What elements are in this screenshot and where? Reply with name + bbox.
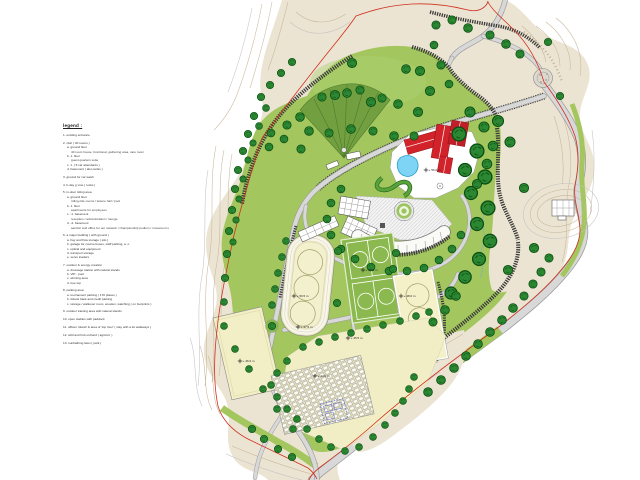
tree-icon [435, 256, 443, 264]
tree-icon [452, 292, 461, 301]
tree-icon [488, 141, 498, 151]
tree-icon [245, 157, 251, 163]
tree-icon [260, 435, 267, 442]
tree-icon [473, 253, 486, 266]
tree-icon [481, 201, 495, 215]
tree-icon [509, 304, 518, 313]
legend-title: legend : [63, 123, 183, 128]
tree-icon [544, 38, 551, 45]
tree-icon [327, 231, 335, 239]
legend-item: 9. outdoor training area with natural st… [63, 309, 183, 313]
svg-text:+ 44.0 m: + 44.0 m [318, 374, 330, 378]
tree-icon [318, 93, 326, 101]
legend-item: aerobic and office for our network / cha… [63, 226, 183, 230]
tree-icon [288, 58, 295, 65]
legend-item: c. storage / walkover room, wooden, watc… [63, 302, 183, 306]
tree-icon [378, 94, 386, 102]
tree-icon [268, 322, 275, 329]
tree-icon [284, 406, 291, 413]
tree-icon [483, 234, 496, 247]
tree-icon [275, 270, 282, 277]
tree-icon [424, 388, 433, 397]
tree-icon [413, 313, 420, 320]
tree-icon [415, 66, 424, 75]
tree-icon [430, 41, 438, 49]
tree-icon [267, 129, 275, 137]
tree-icon [328, 444, 335, 451]
tree-icon [472, 179, 481, 188]
svg-text:+ 46.0 m: + 46.0 m [243, 359, 255, 363]
tree-icon [221, 299, 228, 306]
site-plan-sheet: + 56.0 m+ 52.5 m+ 50.5 m+ 48.0 m+ 47.5 m… [0, 0, 640, 480]
tree-icon [274, 370, 281, 377]
tree-icon [448, 245, 456, 253]
tree-icon [364, 326, 371, 333]
tree-icon [268, 382, 275, 389]
svg-text:+ 47.5 m: + 47.5 m [301, 325, 313, 329]
tree-icon [502, 40, 511, 49]
tree-icon [492, 115, 503, 126]
tree-icon [459, 164, 472, 177]
tree-icon [503, 265, 512, 274]
tree-icon [470, 144, 484, 158]
tree-icon [221, 323, 228, 330]
tree-icon [356, 444, 363, 451]
tree-icon [231, 185, 238, 192]
tree-icon [280, 135, 288, 143]
tree-icon [505, 137, 515, 147]
tree-icon [370, 434, 377, 441]
legend-item: 3. ground for car wash [63, 175, 183, 179]
tree-icon [230, 239, 236, 245]
tree-icon [437, 376, 446, 385]
legend-item: e. servo loaders [63, 255, 183, 259]
tree-icon [257, 93, 264, 100]
tree-icon [240, 176, 246, 182]
tree-icon [234, 166, 241, 173]
tree-icon [537, 268, 545, 276]
tree-icon [221, 274, 228, 281]
tree-icon [269, 302, 276, 309]
tree-icon [432, 21, 440, 29]
tree-icon [284, 358, 291, 365]
legend-item: d. basement ( also tanks ) [63, 167, 183, 171]
tree-icon [448, 16, 456, 24]
tree-icon [425, 86, 434, 95]
tree-icon [474, 340, 483, 349]
tree-icon [316, 436, 323, 443]
tree-icon [520, 292, 528, 300]
tree-icon [445, 80, 453, 88]
tree-icon [482, 159, 492, 169]
tree-icon [223, 250, 230, 257]
tree-icon [389, 265, 396, 272]
legend-panel: legend : 1. existing entrance2. club ( 4… [63, 123, 183, 345]
tree-icon [304, 426, 311, 433]
tree-icon [347, 125, 356, 134]
tree-icon [545, 254, 553, 262]
tree-icon [464, 24, 473, 33]
tree-icon [366, 97, 375, 106]
tree-icon [277, 69, 284, 76]
tree-icon [486, 31, 494, 39]
tree-icon [465, 107, 475, 117]
tree-icon [392, 410, 399, 417]
tree-icon [283, 238, 290, 245]
svg-text:+ 45.5 m: + 45.5 m [351, 336, 363, 340]
tree-icon [519, 183, 528, 192]
tree-icon [351, 255, 359, 263]
legend-item: d. tree top [63, 281, 183, 285]
tree-icon [325, 129, 333, 137]
tree-icon [459, 271, 471, 283]
tree-icon [441, 306, 450, 315]
plaza-deck [380, 223, 385, 228]
tree-icon [429, 318, 437, 326]
tree-icon [450, 364, 459, 373]
tree-icon [347, 58, 356, 67]
tree-icon [248, 425, 255, 432]
tree-icon [300, 344, 307, 351]
legend-item: 11. offices 'island' & area of 'top rive… [63, 325, 183, 329]
tree-icon [342, 448, 349, 455]
tree-icon [323, 215, 331, 223]
tree-icon [294, 416, 301, 423]
tree-icon [244, 130, 251, 137]
tree-icon [403, 267, 411, 275]
legend-item: 13. sunbathing lawn ( park ) [63, 341, 183, 345]
tree-icon [274, 394, 281, 401]
tree-icon [380, 322, 387, 329]
legend-item: 1. existing entrance [63, 133, 183, 137]
tree-icon [250, 140, 256, 146]
tree-icon [402, 65, 411, 74]
tree-icon [343, 89, 352, 98]
tree-icon [260, 386, 267, 393]
tree-icon [316, 339, 323, 346]
legend-list: 1. existing entrance2. club ( 40 rooms )… [63, 133, 183, 345]
tree-icon [274, 445, 281, 452]
tree-icon [452, 127, 466, 141]
legend-item: 4. b-day g vine ( rocks ) [63, 183, 183, 187]
tree-icon [457, 231, 465, 239]
tree-icon [479, 122, 489, 132]
tree-icon [556, 92, 563, 99]
tree-icon [274, 406, 281, 413]
tree-icon [256, 123, 263, 130]
tree-icon [406, 386, 413, 393]
tree-icon [266, 81, 273, 88]
tree-icon [327, 199, 335, 207]
svg-text:+ 56.0 m: + 56.0 m [429, 168, 441, 172]
tree-icon [411, 374, 418, 381]
tree-icon [394, 100, 403, 109]
tree-icon [283, 121, 291, 129]
tree-icon [246, 366, 253, 373]
tree-icon [232, 346, 239, 353]
tree-icon [333, 299, 340, 306]
svg-text:+ 52.5 m: + 52.5 m [366, 268, 378, 272]
legend-item: 10. open stables with paddock [63, 317, 183, 321]
svg-text:+ 50.5 m: + 50.5 m [297, 294, 309, 298]
tree-icon [297, 145, 305, 153]
tree-icon [239, 147, 246, 154]
tree-icon [437, 61, 445, 69]
tree-icon [225, 227, 232, 234]
tree-icon [288, 453, 295, 460]
tree-icon [337, 185, 345, 193]
tree-icon [486, 328, 495, 337]
tree-icon [410, 132, 418, 140]
tree-icon [305, 127, 314, 136]
tree-icon [296, 113, 305, 122]
tree-icon [529, 280, 537, 288]
circular-garden [394, 201, 414, 221]
tree-icon [462, 352, 471, 361]
svg-text:+ 48.0 m: + 48.0 m [404, 294, 416, 298]
legend-item: 12. wild and fruit orchard ( agricult. ) [63, 333, 183, 337]
tree-icon [390, 132, 399, 141]
tree-icon [356, 86, 364, 94]
swimming-pool [397, 156, 418, 177]
tree-icon [392, 249, 399, 256]
tree-icon [334, 247, 341, 254]
tree-icon [397, 318, 404, 325]
tree-icon [250, 112, 257, 119]
tree-icon [382, 422, 389, 429]
tree-icon [400, 398, 407, 405]
tree-icon [265, 143, 273, 151]
tree-icon [529, 243, 538, 252]
tree-icon [498, 316, 507, 325]
tree-icon [471, 218, 484, 231]
tree-icon [228, 206, 235, 213]
tree-icon [369, 127, 377, 135]
tree-icon [263, 105, 270, 112]
tree-icon [279, 254, 286, 261]
tree-icon [290, 426, 297, 433]
tree-icon [233, 217, 239, 223]
tree-icon [413, 107, 422, 116]
tree-icon [332, 334, 339, 341]
tree-icon [516, 50, 524, 58]
tree-icon [330, 90, 339, 99]
tree-icon [272, 286, 279, 293]
tree-icon [236, 196, 242, 202]
tree-icon [426, 309, 433, 316]
tree-icon [420, 264, 428, 272]
